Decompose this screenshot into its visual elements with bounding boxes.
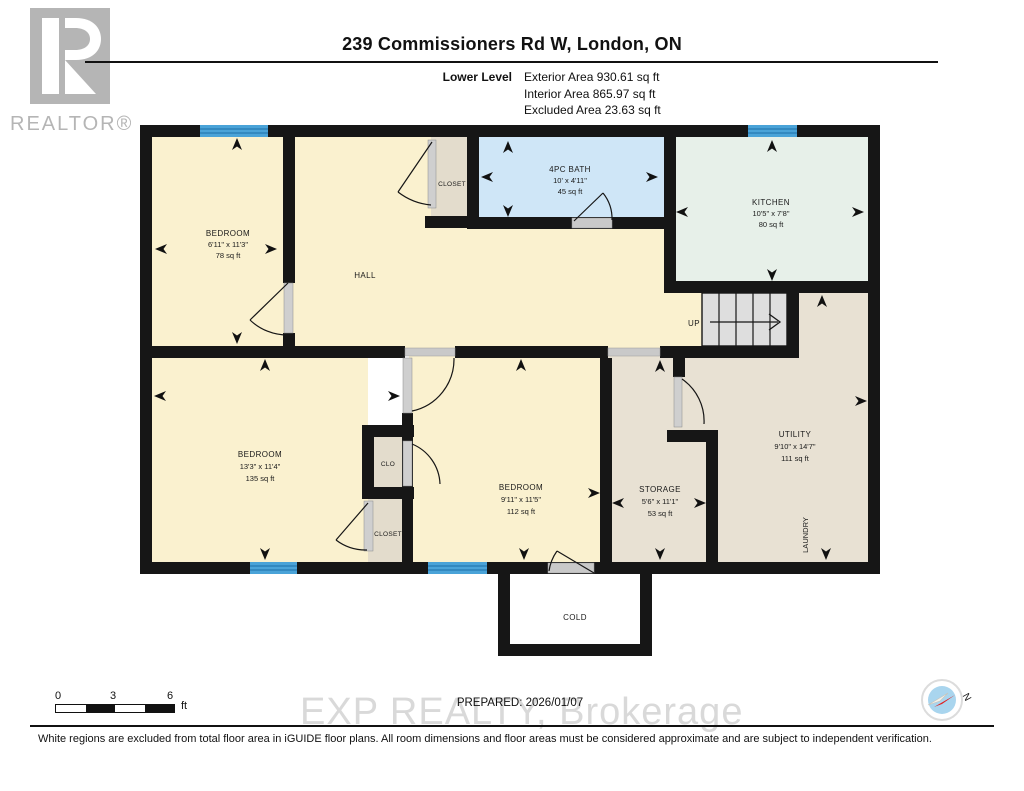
hall-label: HALL [354,271,376,280]
realtor-logo-text: REALTOR® [10,113,130,136]
kitchen-dims: 10'5" x 7'8" [753,209,790,218]
scale-unit: ft [181,700,187,712]
storage-dims: 5'6" x 11'1" [642,497,679,506]
bedroom1-dims: 6'11" x 11'3" [208,240,248,249]
utility-doorway [608,348,660,356]
storage-name: STORAGE [639,485,681,494]
bedroom1-door-leaf [284,283,293,333]
scale-tick-3: 3 [110,690,116,702]
clo-label: CLO [381,461,395,468]
floor-plan: BEDROOM 6'11" x 11'3" 78 sq ft 4PC BATH … [0,0,1024,791]
closet2-label: CLOSET [374,531,402,538]
utility-name: UTILITY [779,430,812,439]
compass: N [918,676,980,729]
disclaimer-text: White regions are excluded from total fl… [38,733,998,745]
storage-area: 53 sq ft [648,509,674,518]
closet-top-label: CLOSET [438,181,466,188]
cold-label: COLD [563,613,587,622]
bedroom2-area: 135 sq ft [246,474,276,483]
header-divider [85,61,938,63]
bath-name: 4PC BATH [549,165,591,174]
bath-doorway [572,218,612,228]
scale-bar-segments [55,704,175,713]
bedroom1-window [200,125,268,137]
kitchen-window [748,125,797,137]
cold-doorway [548,563,594,573]
floor-plan-page: REALTOR® 239 Commissioners Rd W, London,… [0,0,1024,791]
clo-door-leaf [403,441,412,486]
scale-tick-0: 0 [55,690,61,702]
closet2-door-leaf [364,501,373,551]
bath-dims: 10' x 4'11" [553,176,587,185]
stairs [702,293,787,346]
bedroom3-name: BEDROOM [499,483,543,492]
footer-divider [30,725,994,727]
scale-tick-6: 6 [167,690,173,702]
utility-door-leaf [674,377,682,427]
prepared-date: PREPARED: 2026/01/07 [380,697,660,709]
laundry-label: LAUNDRY [801,517,810,553]
closet-door-leaf [428,140,436,208]
utility-dims: 9'10" x 14'7" [774,442,815,451]
bedroom1-area: 78 sq ft [216,251,242,260]
kitchen-name: KITCHEN [752,198,790,207]
bedroom3-door-leaf [403,358,412,413]
bedroom2-dims: 13'3" x 11'4" [240,462,281,471]
bedroom3-area: 112 sq ft [507,507,536,516]
realtor-logo: REALTOR® [10,8,130,136]
bedroom3-doorway [405,348,455,356]
bedroom1-name: BEDROOM [206,229,250,238]
bedroom2-window [250,562,297,574]
realtor-r-icon [28,8,112,106]
scale-bar: 0 3 6 ft [55,690,205,713]
bath-area: 45 sq ft [558,187,584,196]
compass-icon: N [918,676,980,724]
utility-area: 111 sq ft [781,454,810,463]
bedroom3-dims: 9'11" x 11'5" [501,495,541,504]
bedroom3-window [428,562,487,574]
kitchen-area: 80 sq ft [759,220,785,229]
bedroom2-name: BEDROOM [238,450,282,459]
up-label: UP [688,319,700,328]
